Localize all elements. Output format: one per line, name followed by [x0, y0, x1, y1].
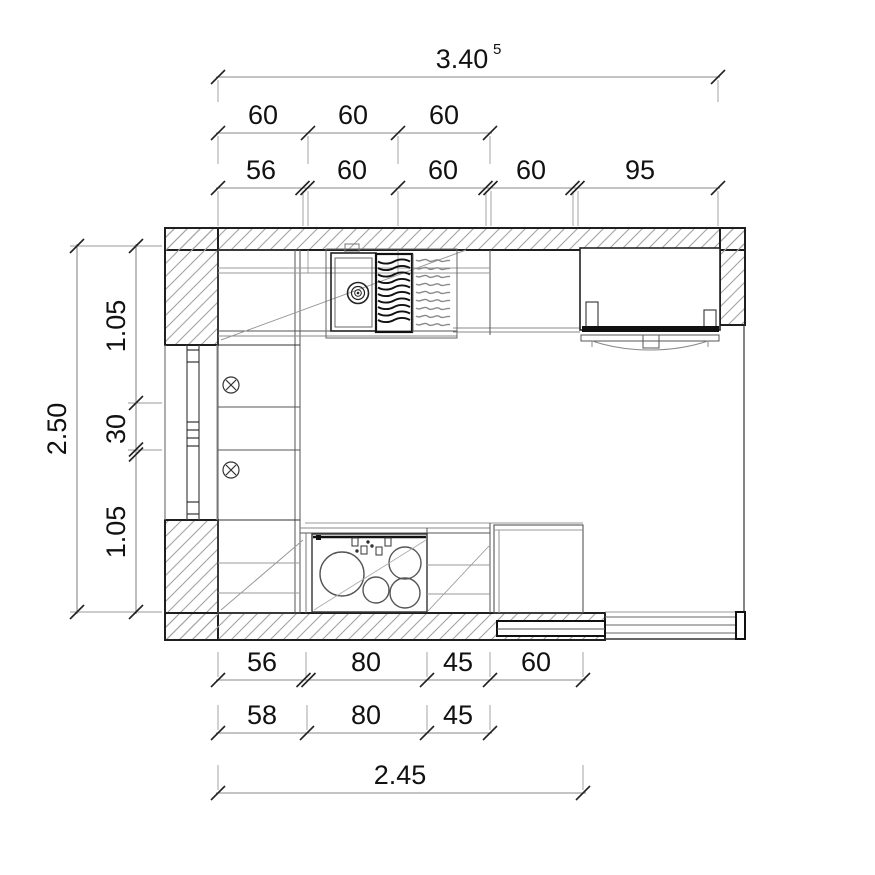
base-cabinet-60 [494, 525, 583, 613]
window-mullions [187, 350, 199, 514]
dimensions-top: 3.40 5 60 60 60 56 60 60 60 95 [211, 41, 725, 226]
dim-label: 30 [101, 414, 131, 444]
burner-medium-bottom [390, 578, 420, 608]
dish-drainer-icon [378, 259, 410, 322]
dim-label: 58 [247, 700, 277, 730]
dim-overall-width: 3.40 [436, 44, 489, 74]
burner-large [320, 552, 364, 596]
wall-right-block [720, 228, 745, 325]
floor-plan-canvas: 3.40 5 60 60 60 56 60 60 60 95 2.50 1.0 [0, 0, 875, 875]
dim-label: 45 [443, 700, 473, 730]
socket-icon [223, 377, 239, 393]
floor-plan-drawing: 3.40 5 60 60 60 56 60 60 60 95 2.50 1.0 [0, 0, 875, 875]
cooktop-knobs-icon [352, 538, 391, 555]
appliance-handle [581, 335, 719, 341]
dim-label: 80 [351, 647, 381, 677]
dim-label: 60 [338, 100, 368, 130]
window [165, 345, 217, 520]
dim-label: 95 [625, 155, 655, 185]
left-cabinet-outline [218, 250, 300, 613]
dim-label: 56 [247, 647, 277, 677]
appliance-body [580, 248, 720, 330]
dim-label: 60 [337, 155, 367, 185]
dim-label: 45 [443, 647, 473, 677]
dim-label: 60 [429, 100, 459, 130]
cooktop [312, 534, 427, 612]
appliance-front-bar [582, 326, 719, 332]
dim-label: 80 [351, 700, 381, 730]
top-counter-run [218, 250, 580, 340]
dim-label: 60 [248, 100, 278, 130]
dim-overall-width-superscript: 5 [493, 41, 501, 58]
dim-label: 60 [428, 155, 458, 185]
dim-label: 60 [516, 155, 546, 185]
dimensions-bottom: 56 80 45 60 58 80 45 2.45 [211, 647, 590, 800]
witness-lines [218, 80, 718, 226]
dim-label: 56 [246, 155, 276, 185]
dish-drainer-2-icon [416, 259, 450, 325]
counter-45-section [427, 546, 490, 611]
dim-label: 60 [521, 647, 551, 677]
left-cabinet-run [218, 250, 303, 613]
base-cabinet-outline [494, 525, 583, 613]
sink-drain-icon [348, 283, 369, 304]
dim-overall-height: 2.50 [42, 403, 72, 456]
sink-unit [326, 244, 457, 338]
dim-label: 1.05 [101, 506, 131, 559]
appliance-door-arc [592, 341, 708, 350]
dimensions-left: 2.50 1.05 30 1.05 [42, 239, 162, 619]
door-jamb [736, 612, 745, 639]
appliance-range [580, 248, 744, 612]
bottom-counter-run [300, 523, 583, 613]
socket-icon [223, 462, 239, 478]
corner-diagonal-top [221, 250, 466, 340]
dim-label: 1.05 [101, 300, 131, 353]
corner-diagonal-bottom [221, 540, 303, 610]
cooktop-diagonal [314, 540, 426, 610]
wall-top [165, 228, 745, 250]
dim-overall-bottom: 2.45 [374, 760, 427, 790]
burner-small [363, 577, 389, 603]
burner-medium-top [389, 547, 421, 579]
wall-top-left-block [165, 228, 218, 345]
